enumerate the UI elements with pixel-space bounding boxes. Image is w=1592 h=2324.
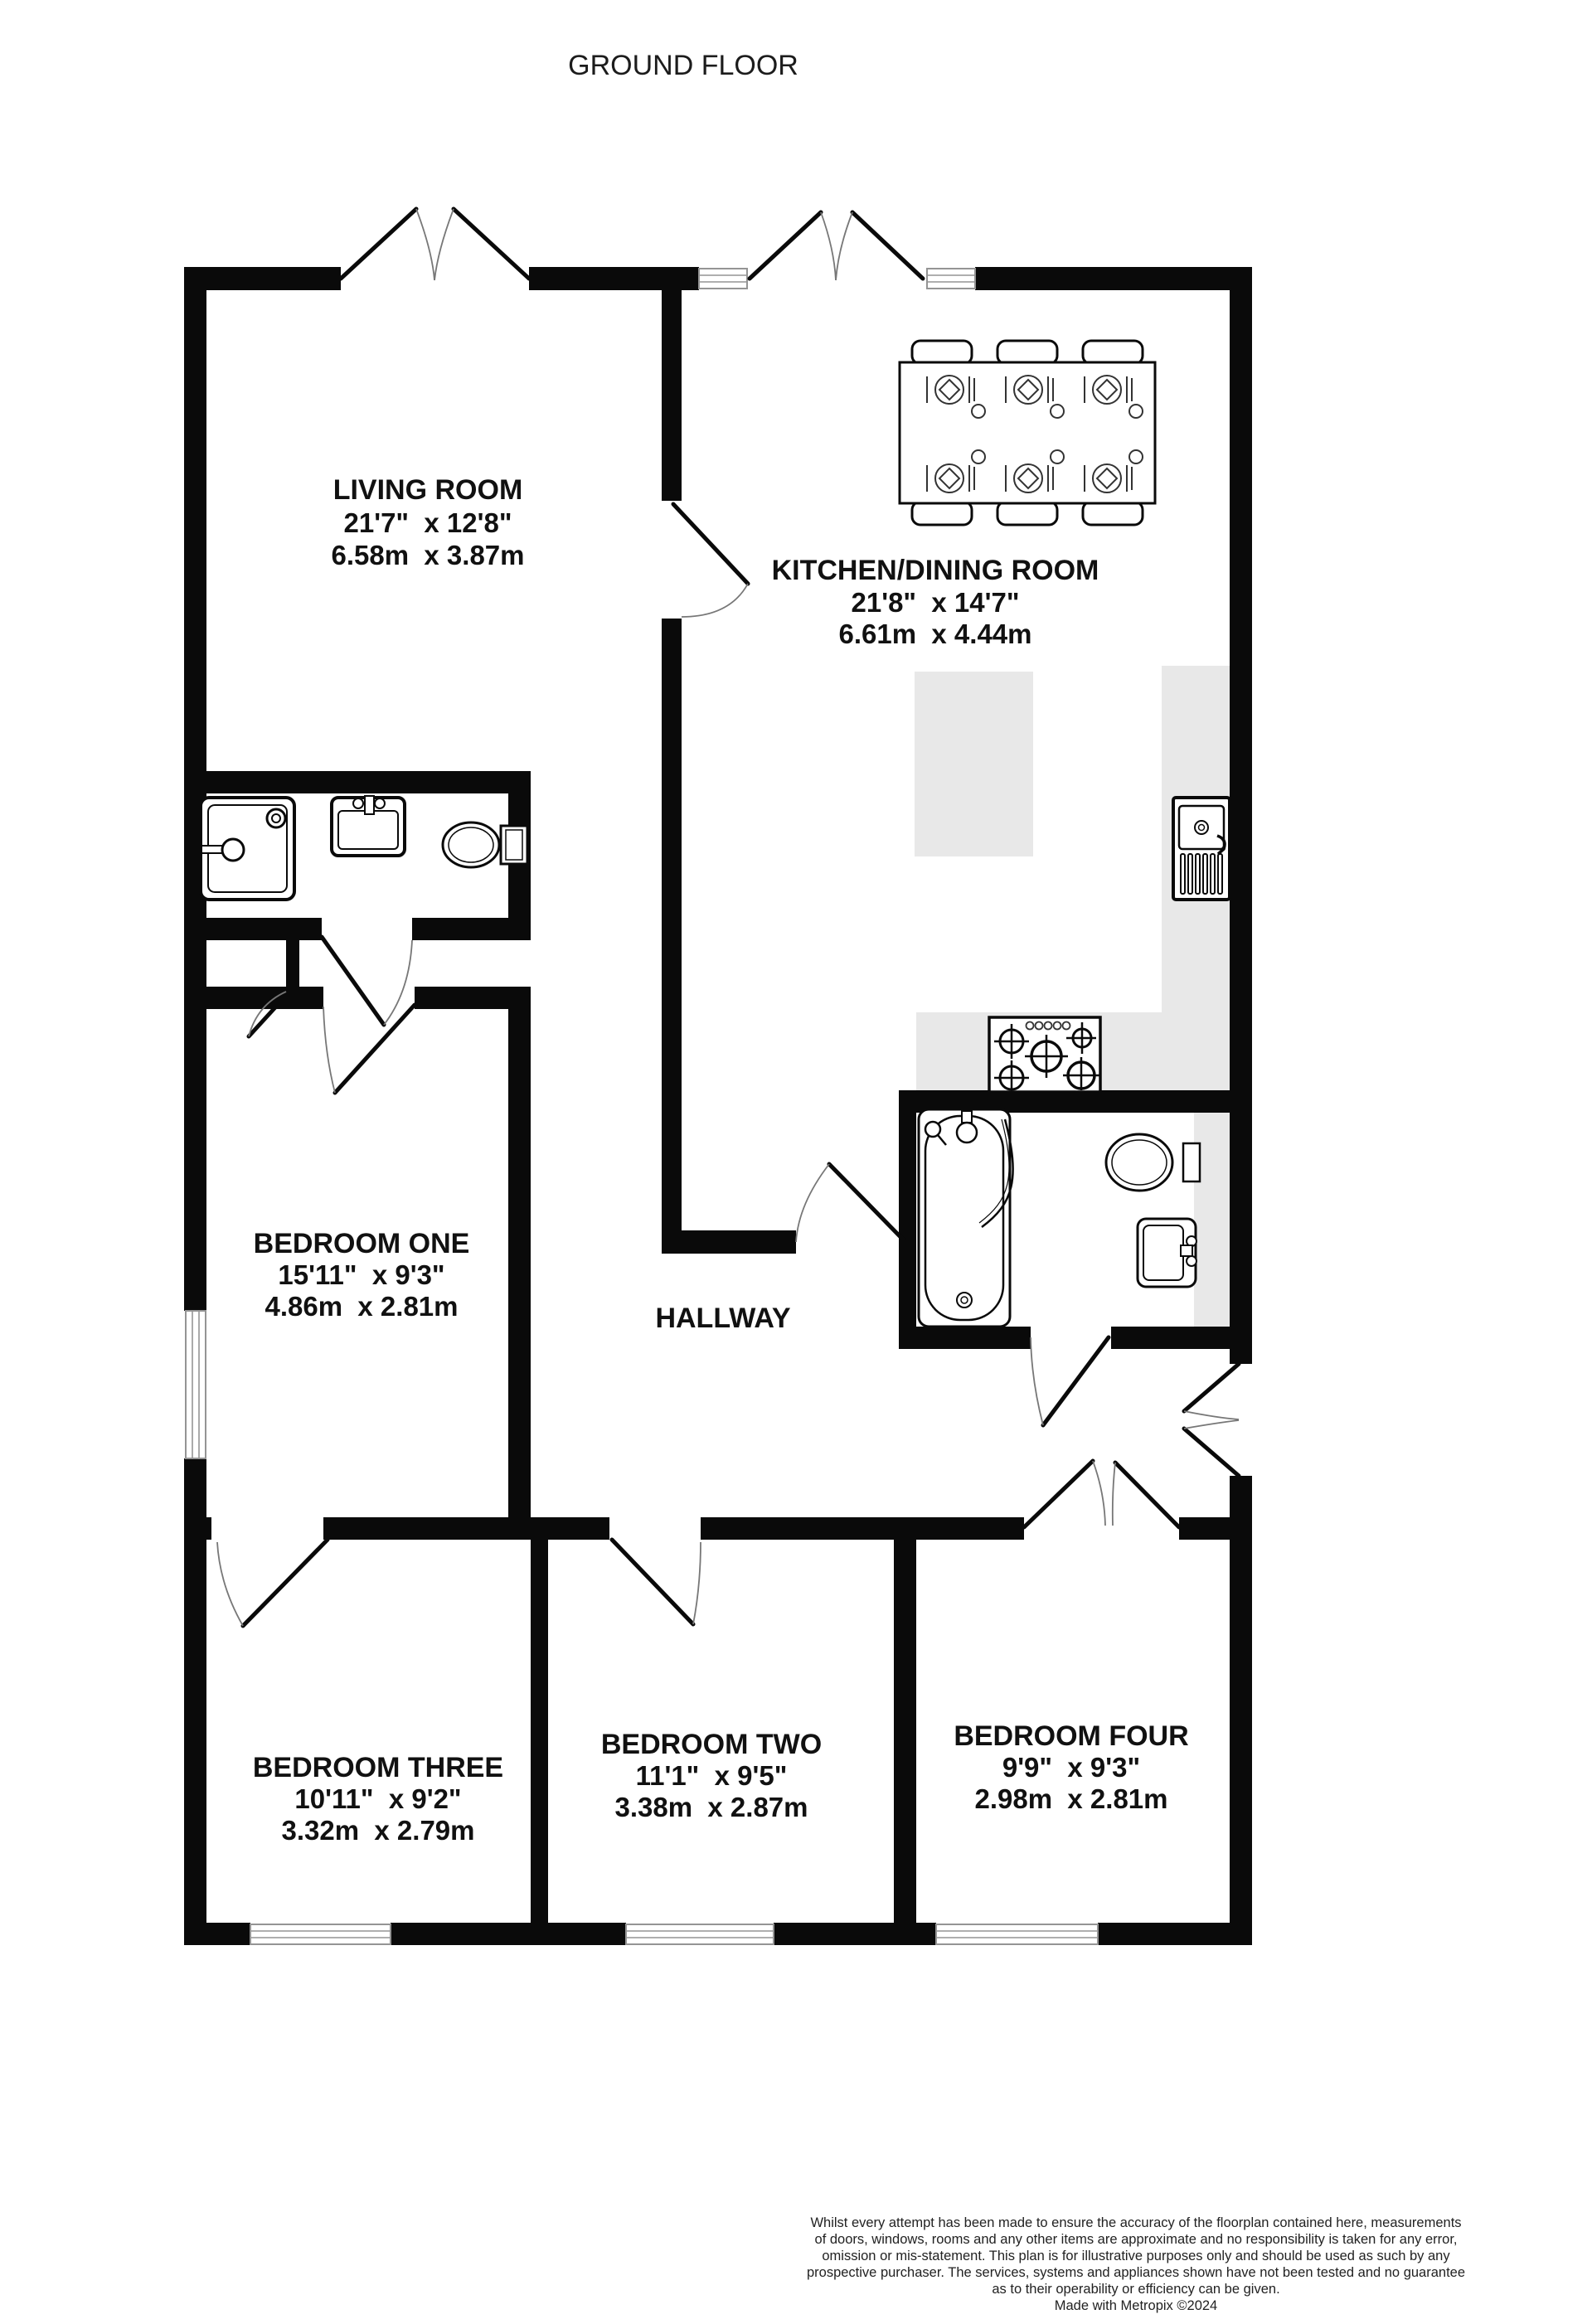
hallway-label: HALLWAY — [655, 1303, 790, 1334]
metropix-credit: Made with Metropix ©2024 — [1055, 2298, 1218, 2313]
toilet-icon — [443, 822, 527, 867]
kitchen-imperial: 21'8" x 14'7" — [852, 587, 1020, 618]
bedroom-three-metric: 3.32m x 2.79m — [282, 1815, 475, 1846]
window-icon — [699, 269, 747, 289]
window-icon — [186, 1311, 206, 1458]
kitchen-metric: 6.61m x 4.44m — [839, 619, 1032, 649]
living-room-imperial: 21'7" x 12'8" — [344, 507, 512, 538]
window-icon — [626, 1924, 774, 1944]
bedroom-one-imperial: 15'11" x 9'3" — [278, 1259, 444, 1290]
window-icon — [250, 1924, 391, 1944]
bedroom-two-label: BEDROOM TWO — [601, 1729, 822, 1760]
door-icon — [323, 1005, 415, 1093]
kitchen-island — [915, 672, 1033, 856]
gas-hob-icon — [989, 1017, 1100, 1092]
disclaimer-line: prospective purchaser. The services, sys… — [807, 2265, 1465, 2280]
door-icon — [673, 504, 748, 617]
floor-plan: GROUND FLOOR — [0, 0, 1592, 2320]
disclaimer: Whilst every attempt has been made to en… — [807, 2215, 1465, 2313]
door-icon — [322, 937, 412, 1025]
bedroom-four-metric: 2.98m x 2.81m — [975, 1783, 1168, 1814]
bedroom-three-imperial: 10'11" x 9'2" — [294, 1783, 461, 1814]
floorplan-page: GROUND FLOOR — [0, 0, 1592, 2320]
dining-table-icon — [900, 362, 1155, 503]
disclaimer-line: Whilst every attempt has been made to en… — [810, 2215, 1461, 2230]
toilet-icon — [1106, 1134, 1200, 1191]
disclaimer-line: omission or mis-statement. This plan is … — [822, 2249, 1450, 2263]
disclaimer-line: of doors, windows, rooms and any other i… — [815, 2232, 1458, 2247]
bedroom-two-imperial: 11'1" x 9'5" — [636, 1760, 788, 1791]
french-door-icon — [1184, 1364, 1239, 1476]
french-door-icon — [341, 209, 529, 280]
bathtub-icon — [919, 1109, 1013, 1327]
bedroom-three-label: BEDROOM THREE — [253, 1752, 503, 1783]
living-room-label: LIVING ROOM — [333, 474, 523, 506]
washbasin-icon — [332, 796, 405, 856]
room-labels: LIVING ROOM 21'7" x 12'8" 6.58m x 3.87m … — [253, 474, 1189, 1846]
door-icon — [217, 1540, 328, 1626]
bedroom-one-metric: 4.86m x 2.81m — [265, 1291, 459, 1322]
door-icon — [796, 1164, 905, 1242]
sink-drainer-icon — [1173, 798, 1230, 900]
shower-icon — [201, 798, 294, 900]
bedroom-one-label: BEDROOM ONE — [254, 1228, 470, 1259]
window-icon — [936, 1924, 1098, 1944]
bedroom-four-imperial: 9'9" x 9'3" — [1002, 1752, 1140, 1783]
door-icon — [1031, 1337, 1109, 1425]
french-door-icon — [750, 212, 923, 280]
bedroom-two-metric: 3.38m x 2.87m — [615, 1792, 808, 1822]
door-icon — [612, 1540, 701, 1624]
double-door-icon — [1024, 1461, 1179, 1527]
dining-set — [900, 341, 1155, 525]
disclaimer-line: as to their operability or efficiency ca… — [992, 2282, 1279, 2297]
floor-title: GROUND FLOOR — [568, 50, 798, 81]
bedroom-four-label: BEDROOM FOUR — [954, 1720, 1188, 1752]
shower-room-fixtures — [201, 796, 527, 900]
bathroom-fixtures — [919, 1109, 1200, 1327]
living-room-metric: 6.58m x 3.87m — [332, 540, 525, 570]
washbasin-icon — [1138, 1219, 1196, 1287]
kitchen-label: KITCHEN/DINING ROOM — [772, 555, 1099, 586]
window-icon — [927, 269, 975, 289]
